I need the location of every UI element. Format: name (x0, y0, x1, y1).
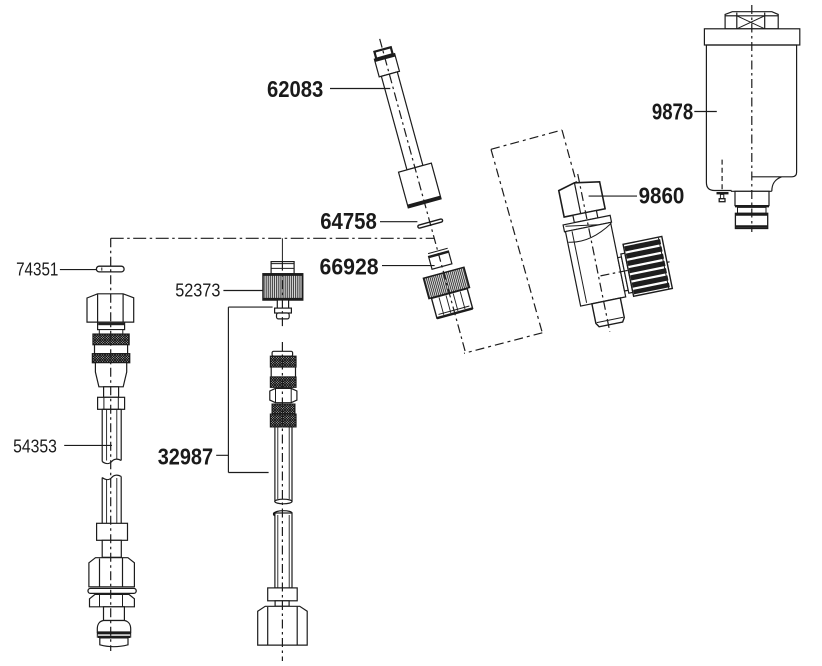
svg-text:52373: 52373 (175, 280, 220, 301)
svg-text:9878: 9878 (652, 98, 693, 124)
svg-text:64758: 64758 (320, 208, 377, 234)
svg-text:54353: 54353 (13, 436, 57, 457)
svg-text:74351: 74351 (16, 259, 58, 280)
svg-text:66928: 66928 (320, 254, 379, 280)
svg-text:62083: 62083 (267, 76, 323, 102)
svg-text:32987: 32987 (158, 443, 213, 469)
svg-text:9860: 9860 (639, 183, 685, 209)
